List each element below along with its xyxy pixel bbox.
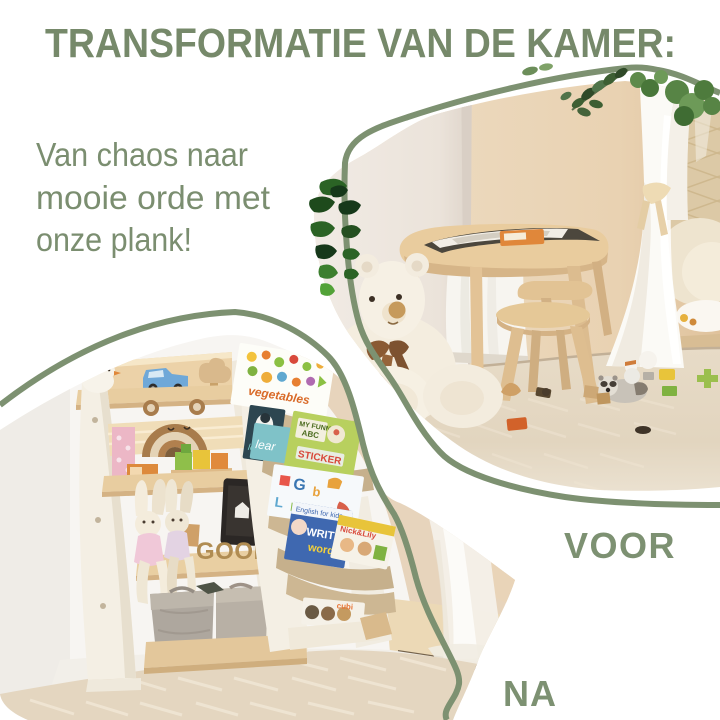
- svg-text:G: G: [292, 476, 307, 495]
- svg-text:lear: lear: [255, 437, 278, 454]
- svg-text:onze plank!: onze plank!: [36, 221, 192, 258]
- svg-text:TRANSFORMATIE VAN DE KAMER:: TRANSFORMATIE VAN DE KAMER:: [45, 20, 676, 66]
- svg-text:cubi: cubi: [336, 601, 353, 611]
- svg-text:VOOR: VOOR: [564, 525, 676, 566]
- svg-text:Van chaos naar: Van chaos naar: [36, 136, 248, 173]
- svg-text:NA: NA: [503, 673, 557, 714]
- svg-text:mooie orde met: mooie orde met: [36, 179, 270, 216]
